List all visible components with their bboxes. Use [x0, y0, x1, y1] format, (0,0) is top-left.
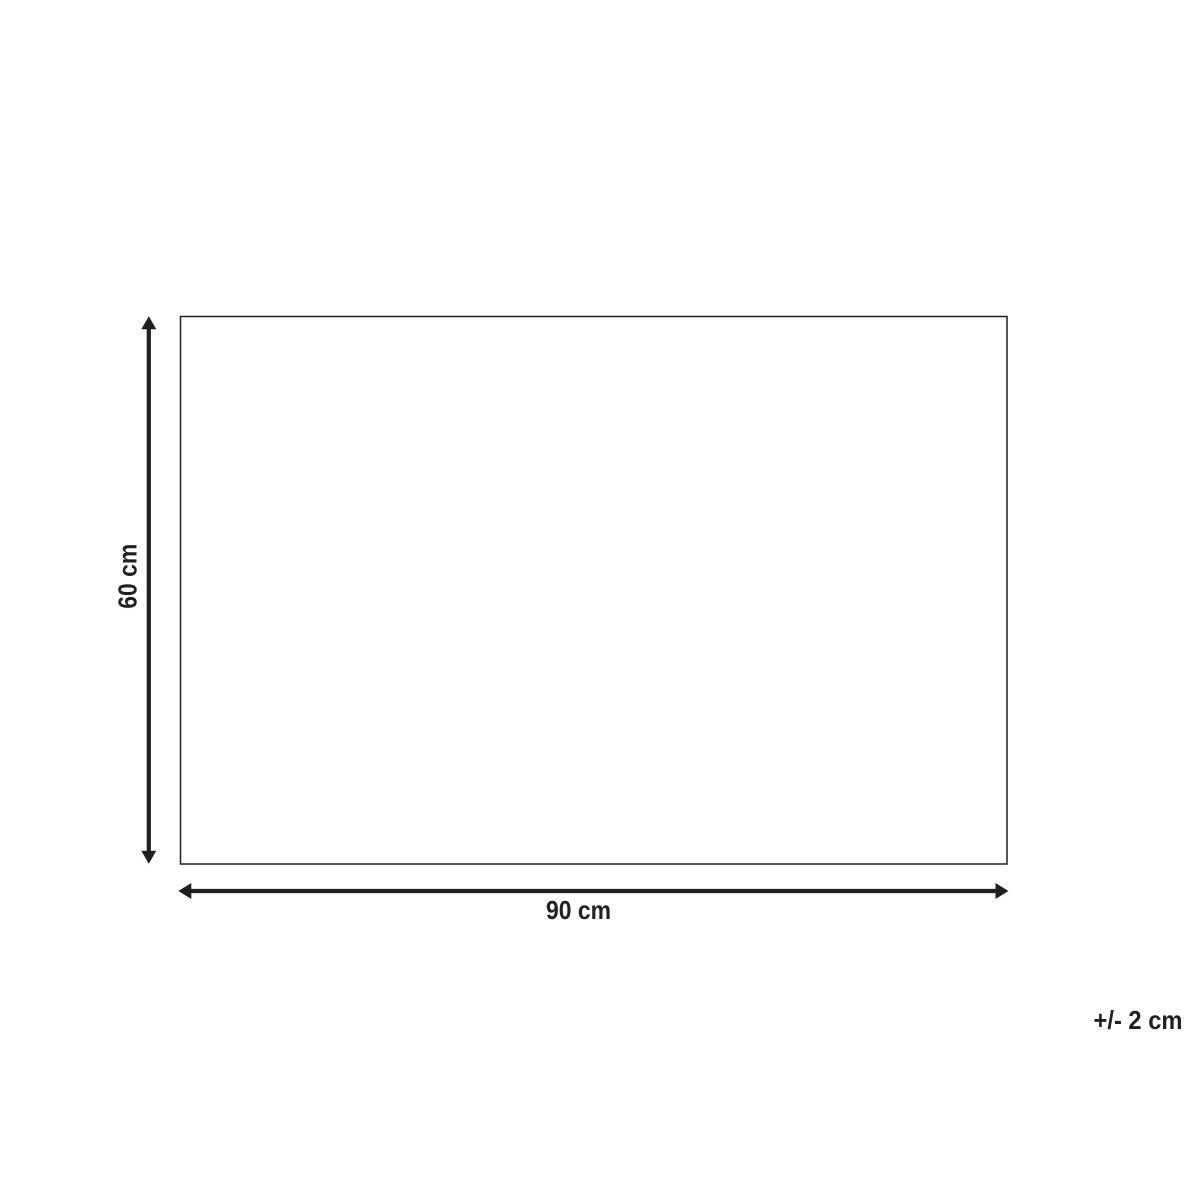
svg-text:+/- 2 cm: +/- 2 cm — [1094, 1005, 1183, 1035]
svg-text:90 cm: 90 cm — [546, 895, 611, 925]
svg-text:60 cm: 60 cm — [113, 544, 143, 609]
